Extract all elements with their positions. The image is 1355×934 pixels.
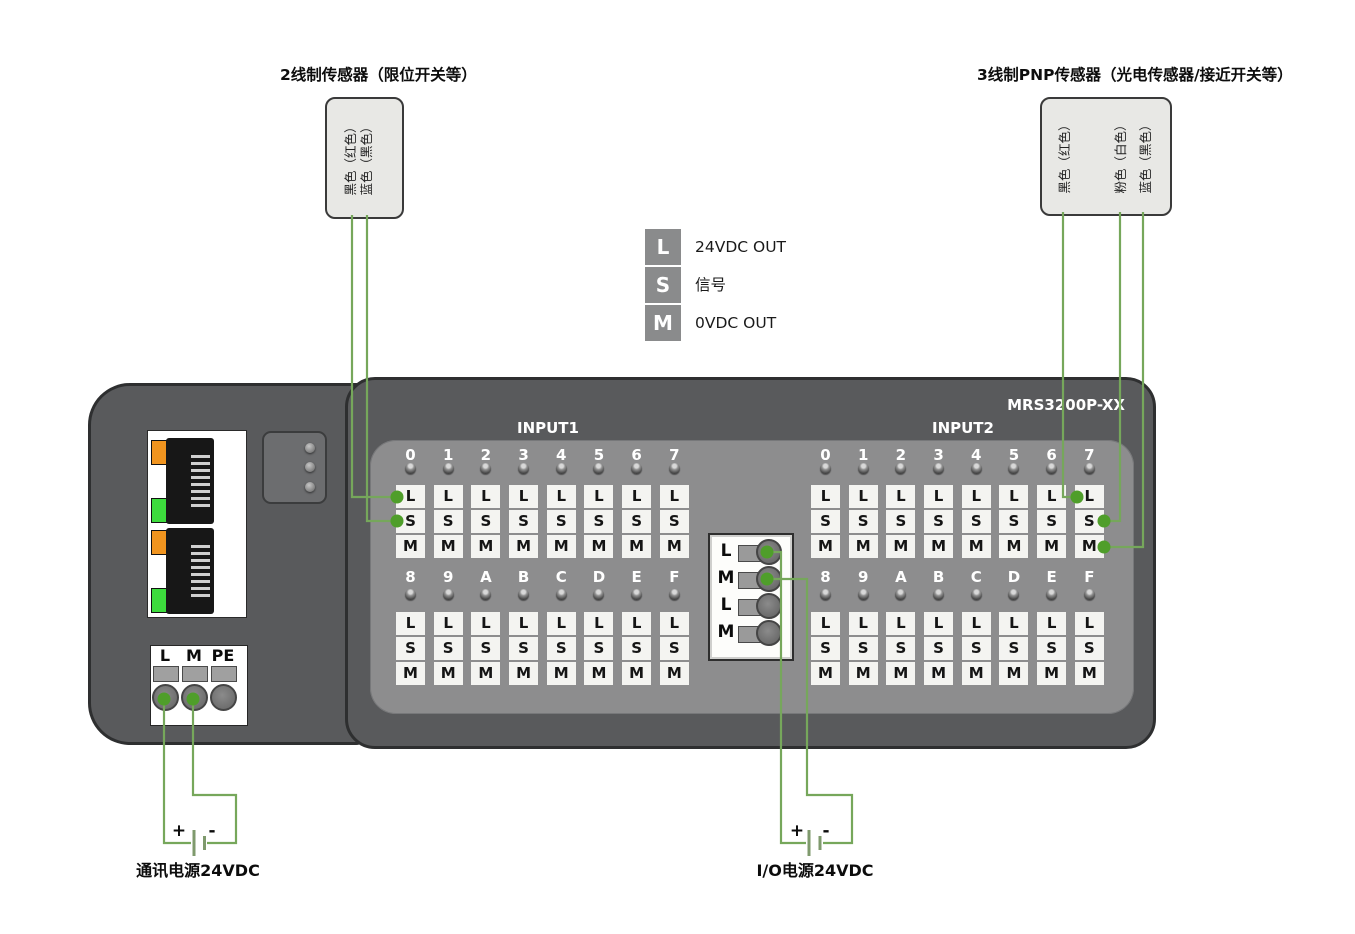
channel-number: 6 (1037, 446, 1066, 464)
legend-key: S (645, 267, 681, 303)
channel-number: A (471, 568, 500, 586)
comm-terminal-hole (181, 684, 208, 711)
terminal-l: L (471, 485, 500, 508)
io-terminal-hole (756, 539, 782, 565)
legend-key: M (645, 305, 681, 341)
wire-color-label: 黑色（红色） (343, 104, 359, 212)
channel-number: 6 (622, 446, 651, 464)
terminal-l: L (849, 612, 878, 635)
channel-input1-6: 6LSM (622, 446, 651, 564)
channel-led (480, 589, 491, 600)
channel-led (405, 463, 416, 474)
terminal-l: L (547, 612, 576, 635)
model-label: MRS3200P-XX (985, 396, 1125, 414)
channel-led (443, 463, 454, 474)
channel-led (631, 589, 642, 600)
channel-led (1084, 463, 1095, 474)
channel-input2-f: FLSM (1075, 568, 1104, 686)
channel-input1-3: 3LSM (509, 446, 538, 564)
terminal-m: M (849, 662, 878, 685)
channel-led (971, 463, 982, 474)
input1-channels-8-f: 8LSM9LSMALSMBLSMCLSMDLSMELSMFLSM (396, 568, 689, 686)
terminal-m: M (1037, 662, 1066, 685)
channel-number: 8 (396, 568, 425, 586)
channel-input2-6: 6LSM (1037, 446, 1066, 564)
terminal-l: L (622, 612, 651, 635)
channel-input2-7: 7LSM (1075, 446, 1104, 564)
comm-power-label: 通讯电源24VDC (118, 857, 278, 881)
channel-number: 0 (396, 446, 425, 464)
channel-input1-f: FLSM (660, 568, 689, 686)
terminal-m: M (999, 662, 1028, 685)
terminal-m: M (622, 662, 651, 685)
channel-number: 9 (434, 568, 463, 586)
terminal-m: M (811, 535, 840, 558)
terminal-l: L (622, 485, 651, 508)
channel-number: 3 (509, 446, 538, 464)
three-wire-sensor-box: 黑色（红色） 粉色（白色） 蓝色（黑色） (1040, 97, 1172, 216)
terminal-m: M (886, 535, 915, 558)
channel-input1-9: 9LSM (434, 568, 463, 686)
comm-terminal-label-pe: PE (209, 646, 237, 665)
channel-number: 8 (811, 568, 840, 586)
terminal-s: S (509, 510, 538, 533)
terminal-m: M (924, 662, 953, 685)
legend-label: 0VDC OUT (695, 305, 776, 341)
io-terminal-row-m-3: M (710, 620, 792, 647)
rj45-pins (191, 545, 210, 597)
channel-number: F (660, 568, 689, 586)
terminal-l: L (999, 485, 1028, 508)
channel-input2-2: 2LSM (886, 446, 915, 564)
terminal-m: M (886, 662, 915, 685)
terminal-s: S (509, 637, 538, 660)
terminal-l: L (1075, 612, 1104, 635)
channel-number: E (1037, 568, 1066, 586)
channel-number: 4 (547, 446, 576, 464)
terminal-l: L (471, 612, 500, 635)
channel-led (669, 589, 680, 600)
status-dot (305, 462, 315, 472)
channel-number: 7 (660, 446, 689, 464)
ethernet-port-2 (151, 528, 243, 614)
terminal-s: S (999, 510, 1028, 533)
terminal-m: M (471, 535, 500, 558)
channel-led (669, 463, 680, 474)
terminal-s: S (471, 637, 500, 660)
terminal-l: L (962, 612, 991, 635)
terminal-s: S (584, 637, 613, 660)
terminal-m: M (1075, 535, 1104, 558)
channel-led (820, 589, 831, 600)
channel-number: C (547, 568, 576, 586)
terminal-s: S (811, 510, 840, 533)
terminal-s: S (962, 637, 991, 660)
channel-number: D (584, 568, 613, 586)
terminal-m: M (396, 535, 425, 558)
comm-terminal-label-m: M (180, 646, 208, 665)
two-wire-sensor-title: 2线制传感器（限位开关等） (280, 63, 477, 85)
channel-input1-b: BLSM (509, 568, 538, 686)
channel-led (556, 589, 567, 600)
terminal-s: S (660, 637, 689, 660)
terminal-m: M (962, 535, 991, 558)
terminal-s: S (622, 510, 651, 533)
terminal-s: S (1075, 510, 1104, 533)
ethernet-port-1 (151, 438, 243, 524)
terminal-m: M (509, 662, 538, 685)
channel-led (480, 463, 491, 474)
terminal-l: L (434, 485, 463, 508)
wiring-diagram: 2线制传感器（限位开关等） 黑色（红色） 蓝色（黑色） 3线制PNP传感器（光电… (0, 0, 1355, 934)
terminal-l: L (811, 485, 840, 508)
input1-label: INPUT1 (498, 419, 598, 437)
io-power-terminal: LMLM (708, 533, 794, 661)
status-dot (305, 443, 315, 453)
channel-number: E (622, 568, 651, 586)
channel-led (593, 463, 604, 474)
channel-number: 7 (1075, 446, 1104, 464)
channel-number: 3 (924, 446, 953, 464)
terminal-s: S (811, 637, 840, 660)
channel-led (933, 463, 944, 474)
terminal-l: L (660, 612, 689, 635)
io-terminal-hole (756, 620, 782, 646)
terminal-l: L (584, 612, 613, 635)
io-terminal-label: M (717, 622, 735, 642)
channel-input2-b: BLSM (924, 568, 953, 686)
channel-input2-0: 0LSM (811, 446, 840, 564)
comm-terminal-slot (153, 666, 179, 682)
channel-number: 5 (999, 446, 1028, 464)
terminal-s: S (886, 510, 915, 533)
terminal-l: L (547, 485, 576, 508)
channel-led (405, 589, 416, 600)
terminal-m: M (1037, 535, 1066, 558)
channel-input1-4: 4LSM (547, 446, 576, 564)
channel-number: 1 (434, 446, 463, 464)
terminal-l: L (999, 612, 1028, 635)
terminal-m: M (1075, 662, 1104, 685)
channel-number: F (1075, 568, 1104, 586)
channel-input1-2: 2LSM (471, 446, 500, 564)
channel-input2-d: DLSM (999, 568, 1028, 686)
comm-terminal-hole (210, 684, 237, 711)
channel-led (1046, 463, 1057, 474)
terminal-l: L (396, 612, 425, 635)
terminal-m: M (434, 662, 463, 685)
terminal-s: S (547, 510, 576, 533)
input1-channels-0-7: 0LSM1LSM2LSM3LSM4LSM5LSM6LSM7LSM (396, 446, 689, 564)
io-terminal-row-l-0: L (710, 539, 792, 566)
input2-channels-8-f: 8LSM9LSMALSMBLSMCLSMDLSMELSMFLSM (811, 568, 1104, 686)
terminal-s: S (584, 510, 613, 533)
terminal-s: S (434, 637, 463, 660)
terminal-s: S (622, 637, 651, 660)
channel-led (820, 463, 831, 474)
channel-number: C (962, 568, 991, 586)
channel-led (858, 463, 869, 474)
terminal-s: S (962, 510, 991, 533)
channel-led (631, 463, 642, 474)
io-power-label: I/O电源24VDC (735, 857, 895, 881)
channel-led (518, 589, 529, 600)
channel-led (518, 463, 529, 474)
comm-terminal-label-l: L (151, 646, 179, 665)
channel-input2-3: 3LSM (924, 446, 953, 564)
terminal-s: S (660, 510, 689, 533)
wire-color-label: 黑色（红色） (1057, 102, 1073, 210)
terminal-s: S (547, 637, 576, 660)
terminal-l: L (1037, 485, 1066, 508)
channel-input1-a: ALSM (471, 568, 500, 686)
io-terminal-label: L (717, 595, 735, 615)
terminal-s: S (849, 510, 878, 533)
terminal-s: S (924, 510, 953, 533)
channel-input1-7: 7LSM (660, 446, 689, 564)
channel-number: 4 (962, 446, 991, 464)
terminal-l: L (886, 485, 915, 508)
comm-terminal-slot (182, 666, 208, 682)
channel-led (1008, 463, 1019, 474)
legend-key: L (645, 229, 681, 265)
terminal-l: L (1037, 612, 1066, 635)
terminal-l: L (962, 485, 991, 508)
channel-led (1008, 589, 1019, 600)
channel-led (443, 589, 454, 600)
terminal-s: S (1037, 510, 1066, 533)
three-wire-sensor-title: 3线制PNP传感器（光电传感器/接近开关等） (977, 63, 1293, 85)
channel-input2-1: 1LSM (849, 446, 878, 564)
channel-input2-9: 9LSM (849, 568, 878, 686)
terminal-s: S (924, 637, 953, 660)
channel-input2-c: CLSM (962, 568, 991, 686)
channel-input2-4: 4LSM (962, 446, 991, 564)
wire-color-label: 蓝色（黑色） (1138, 102, 1154, 210)
io-terminal-hole (756, 566, 782, 592)
terminal-l: L (396, 485, 425, 508)
channel-led (556, 463, 567, 474)
legend-label: 信号 (695, 267, 726, 303)
channel-input1-1: 1LSM (434, 446, 463, 564)
terminal-m: M (999, 535, 1028, 558)
comm-terminal-hole (152, 684, 179, 711)
io-minus-sign: - (817, 821, 835, 841)
terminal-l: L (849, 485, 878, 508)
terminal-m: M (622, 535, 651, 558)
terminal-l: L (660, 485, 689, 508)
channel-number: B (509, 568, 538, 586)
comm-plus-sign: + (170, 821, 188, 841)
terminal-m: M (396, 662, 425, 685)
terminal-l: L (924, 612, 953, 635)
wire-color-label: 蓝色（黑色） (359, 104, 375, 212)
terminal-l: L (924, 485, 953, 508)
input2-label: INPUT2 (913, 419, 1013, 437)
channel-input1-e: ELSM (622, 568, 651, 686)
channel-number: B (924, 568, 953, 586)
channel-led (858, 589, 869, 600)
terminal-l: L (434, 612, 463, 635)
terminal-s: S (849, 637, 878, 660)
terminal-l: L (509, 612, 538, 635)
channel-number: 2 (471, 446, 500, 464)
channel-input1-d: DLSM (584, 568, 613, 686)
terminal-l: L (509, 485, 538, 508)
channel-input1-c: CLSM (547, 568, 576, 686)
io-terminal-label: M (717, 568, 735, 588)
terminal-m: M (660, 535, 689, 558)
channel-led (1046, 589, 1057, 600)
channel-number: 2 (886, 446, 915, 464)
legend-label: 24VDC OUT (695, 229, 786, 265)
terminal-m: M (962, 662, 991, 685)
channel-number: A (886, 568, 915, 586)
channel-input2-a: ALSM (886, 568, 915, 686)
channel-input1-5: 5LSM (584, 446, 613, 564)
channel-number: 9 (849, 568, 878, 586)
channel-number: 5 (584, 446, 613, 464)
status-dot (305, 482, 315, 492)
input2-channels-0-7: 0LSM1LSM2LSM3LSM4LSM5LSM6LSM7LSM (811, 446, 1104, 564)
channel-led (933, 589, 944, 600)
channel-led (895, 463, 906, 474)
channel-number: D (999, 568, 1028, 586)
terminal-m: M (471, 662, 500, 685)
comm-minus-sign: - (203, 821, 221, 841)
io-terminal-row-m-1: M (710, 566, 792, 593)
channel-input1-0: 0LSM (396, 446, 425, 564)
io-terminal-label: L (717, 541, 735, 561)
rj45-pins (191, 455, 210, 507)
terminal-s: S (1037, 637, 1066, 660)
ethernet-port-area (147, 430, 247, 618)
comm-power-terminal: LMPE (150, 645, 248, 726)
comm-terminal-slot (211, 666, 237, 682)
terminal-m: M (660, 662, 689, 685)
channel-input1-8: 8LSM (396, 568, 425, 686)
channel-input2-8: 8LSM (811, 568, 840, 686)
io-plus-sign: + (788, 821, 806, 841)
status-button-panel (262, 431, 327, 504)
terminal-s: S (396, 637, 425, 660)
terminal-m: M (811, 662, 840, 685)
terminal-l: L (1075, 485, 1104, 508)
terminal-s: S (434, 510, 463, 533)
channel-led (593, 589, 604, 600)
terminal-s: S (999, 637, 1028, 660)
io-terminal-hole (756, 593, 782, 619)
terminal-m: M (509, 535, 538, 558)
terminal-l: L (811, 612, 840, 635)
channel-led (895, 589, 906, 600)
channel-input2-5: 5LSM (999, 446, 1028, 564)
channel-led (971, 589, 982, 600)
terminal-m: M (547, 535, 576, 558)
two-wire-sensor-box: 黑色（红色） 蓝色（黑色） (325, 97, 404, 219)
terminal-s: S (396, 510, 425, 533)
terminal-m: M (584, 662, 613, 685)
terminal-s: S (886, 637, 915, 660)
terminal-l: L (886, 612, 915, 635)
terminal-s: S (471, 510, 500, 533)
terminal-m: M (849, 535, 878, 558)
wire-color-label: 粉色（白色） (1113, 102, 1129, 210)
terminal-l: L (584, 485, 613, 508)
channel-led (1084, 589, 1095, 600)
terminal-m: M (547, 662, 576, 685)
channel-number: 1 (849, 446, 878, 464)
terminal-m: M (584, 535, 613, 558)
terminal-m: M (434, 535, 463, 558)
channel-number: 0 (811, 446, 840, 464)
terminal-s: S (1075, 637, 1104, 660)
io-terminal-row-l-2: L (710, 593, 792, 620)
channel-input2-e: ELSM (1037, 568, 1066, 686)
terminal-m: M (924, 535, 953, 558)
